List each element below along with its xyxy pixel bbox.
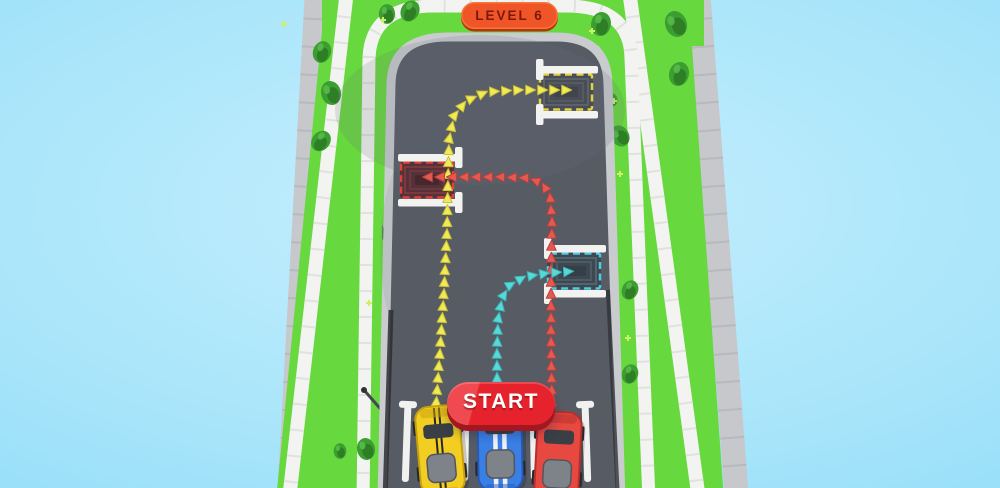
car-windshield bbox=[544, 429, 575, 445]
spot-cap bbox=[455, 147, 463, 168]
start-button[interactable]: START bbox=[447, 382, 555, 425]
grass-sparkle bbox=[281, 21, 287, 27]
car-windshield bbox=[423, 423, 454, 440]
spot-cap bbox=[455, 192, 463, 213]
spot-cap bbox=[536, 104, 544, 125]
game-stage: LEVEL 6 START bbox=[0, 0, 1000, 488]
spot-cap bbox=[536, 59, 544, 80]
level-badge-label: LEVEL 6 bbox=[475, 8, 544, 23]
spot-line-bottom bbox=[537, 111, 598, 119]
car-rear-window bbox=[542, 459, 571, 488]
tree bbox=[334, 443, 347, 458]
level-badge: LEVEL 6 bbox=[461, 2, 558, 29]
car-rear-bumper bbox=[486, 484, 516, 488]
spot-line-top bbox=[537, 66, 598, 74]
car-rear-window bbox=[486, 450, 514, 478]
start-button-label: START bbox=[463, 390, 539, 414]
car-rear-window bbox=[426, 453, 456, 483]
